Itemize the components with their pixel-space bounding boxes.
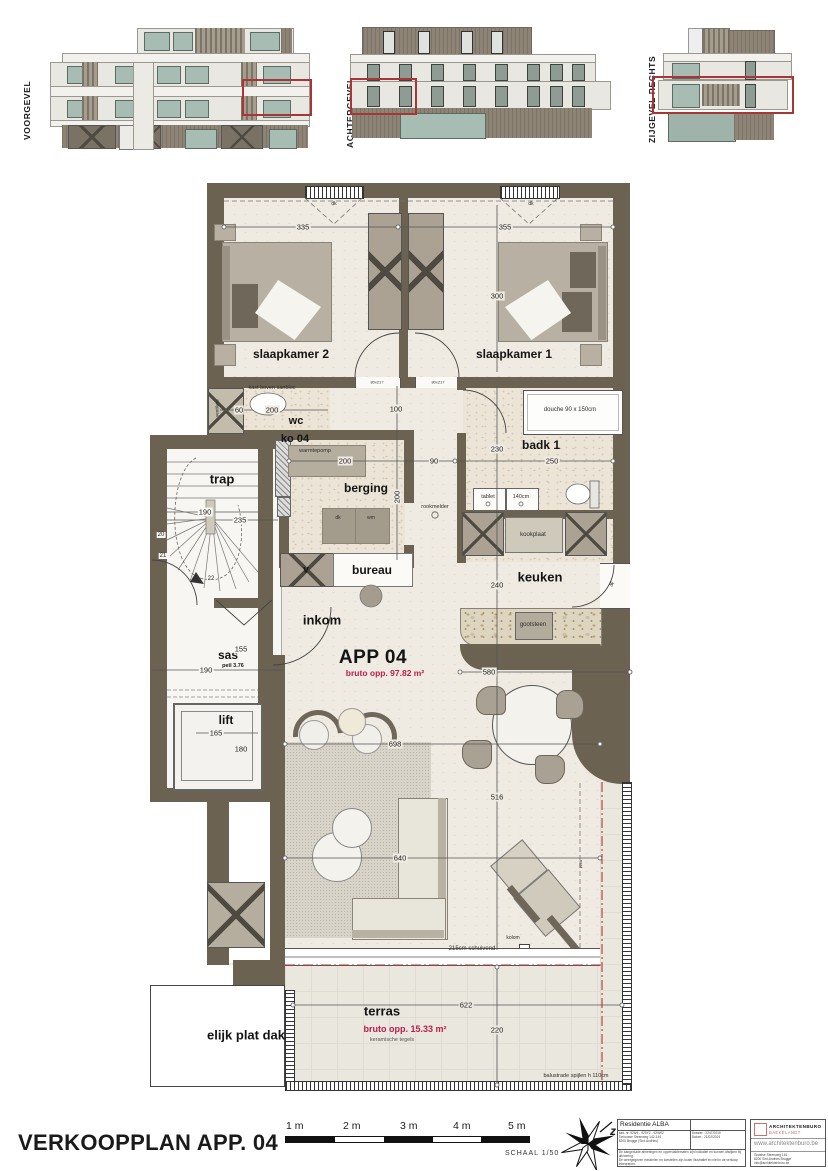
dim: 190 xyxy=(199,666,214,675)
room-label-berging: berging xyxy=(344,481,388,495)
level-label: peil 3.76 xyxy=(222,663,244,669)
dim: 580 xyxy=(482,668,497,677)
note-dp: dp xyxy=(610,581,615,586)
disclaimer-line: De aangeduide afmetingen en oppervlaktem… xyxy=(619,1150,742,1158)
note-schuivend: 215cm schuivend xyxy=(449,946,496,952)
note-tablet: tablet xyxy=(481,494,494,500)
room-label-badk1: badk 1 xyxy=(522,438,560,452)
scale-label: 3 m xyxy=(400,1120,418,1132)
plan-linework xyxy=(0,0,828,1171)
room-label-slaapkamer1: slaapkamer 1 xyxy=(476,347,552,361)
dim: 355 xyxy=(498,223,513,232)
dim: 640 xyxy=(393,854,408,863)
terrace-area: bruto opp. 15.33 m² xyxy=(363,1024,446,1034)
city-line: 8200 Brugge (Sint-Andries) xyxy=(619,1139,689,1143)
scale-segment xyxy=(335,1137,384,1142)
note-warmtepomp: warmtepomp xyxy=(299,448,331,454)
scale-bar xyxy=(285,1136,530,1143)
note-gootsteen: gootsteen xyxy=(520,622,546,628)
divider xyxy=(751,1138,825,1139)
architect-address: info@architektenburo.be xyxy=(754,1161,826,1165)
scale-label: 5 m xyxy=(508,1120,526,1132)
verkoopplan-sheet: VOORGEVEL ACHTERGEVEL ZIJGEVEL RECHTS xyxy=(0,0,828,1171)
note-tablet-140: 140cm xyxy=(513,494,530,500)
architect-site: www.architektenburo.be xyxy=(754,1141,818,1147)
note-dk-window: dk xyxy=(331,201,336,207)
dim: 200 xyxy=(265,406,280,415)
dim: 220 xyxy=(490,1026,505,1035)
architect-block: ARCHITEKTENBURO BAEKELANDT www.architekt… xyxy=(750,1119,826,1167)
note-vast: vast xyxy=(579,860,584,868)
scale-segment xyxy=(433,1137,481,1142)
note-kolom: kolom xyxy=(506,935,519,941)
scale-label: 4 m xyxy=(453,1120,471,1132)
door-size: 80x217 xyxy=(431,380,444,385)
dim: 240 xyxy=(490,581,505,590)
dim: 190 xyxy=(198,508,213,517)
room-label-lift: lift xyxy=(219,713,234,727)
label-v: v xyxy=(303,565,309,576)
titleblock-disclaimer-cell: De aangeduide afmetingen en oppervlaktem… xyxy=(617,1149,746,1167)
disclaimer-line: De weergegeven meubelen en toestellen zi… xyxy=(619,1158,742,1166)
room-label-wc: wc xyxy=(289,415,304,427)
dim: 200 xyxy=(338,457,353,466)
note-kast: kast boven sanbloc xyxy=(248,385,295,391)
sheet-title: VERKOOPPLAN APP. 04 xyxy=(18,1130,278,1156)
scale-segment xyxy=(481,1137,529,1142)
dim: 22 xyxy=(207,576,216,582)
titleblock-address-cell: kad. nr. 928/4 - 929Y2 - 929W2 Torhoutse… xyxy=(617,1130,691,1150)
dim: 20 xyxy=(157,532,166,538)
dim: 235 xyxy=(233,516,248,525)
dim: 335 xyxy=(296,223,311,232)
titleblock-dossier-cell: Dossier : 2247/2019 Datum : 21/02/2024 xyxy=(690,1130,746,1150)
scale-segment xyxy=(384,1137,433,1142)
dim: 155 xyxy=(234,645,249,654)
architect-logo-icon xyxy=(754,1123,767,1136)
door-size: 80x217 xyxy=(370,380,383,385)
project-name: Residentie ALBA xyxy=(618,1121,690,1128)
dim: 698 xyxy=(388,740,403,749)
scale-label: 2 m xyxy=(343,1120,361,1132)
room-label-ko04: ko 04 xyxy=(281,433,309,445)
north-letter: z xyxy=(610,1124,616,1138)
dim: 622 xyxy=(459,1001,474,1010)
apartment-label: APP 04 xyxy=(339,647,407,669)
architect-subname: BAEKELANDT xyxy=(769,1130,801,1135)
room-label-trap: trap xyxy=(210,472,235,487)
dim: 90 xyxy=(429,457,439,466)
dim: 230 xyxy=(490,445,505,454)
room-label-inkom: inkom xyxy=(303,613,341,628)
note-dk-window: dk xyxy=(528,201,533,207)
scale-label: 1 m xyxy=(286,1120,304,1132)
room-label-keuken: keuken xyxy=(518,570,563,585)
apartment-area: bruto opp. 97.82 m² xyxy=(346,668,424,678)
note-kookplaat: kookplaat xyxy=(520,532,546,538)
terrace-note: keramische tegels xyxy=(370,1037,414,1043)
note-ventilatie: ventilatie xyxy=(215,399,220,417)
room-label-terras: terras xyxy=(364,1004,400,1019)
dim: 516 xyxy=(490,793,505,802)
divider xyxy=(751,1151,825,1152)
dim: 180 xyxy=(234,745,249,754)
architect-name: ARCHITEKTENBURO xyxy=(769,1124,821,1129)
dim: 250 xyxy=(545,457,560,466)
dim: 60 xyxy=(234,406,244,415)
title-block: Residentie ALBA kad. nr. 928/4 - 929Y2 -… xyxy=(617,1119,746,1167)
datum: Datum : 21/02/2024 xyxy=(692,1135,744,1139)
note-douche: douche 90 x 150cm xyxy=(544,407,596,413)
scale-caption: SCHAAL 1/50 xyxy=(505,1150,559,1157)
dim: 165 xyxy=(209,729,224,738)
room-label-bureau: bureau xyxy=(352,563,392,577)
room-label-slaapkamer2: slaapkamer 2 xyxy=(253,347,329,361)
dim: 300 xyxy=(490,292,505,301)
note-rookmelder: rookmelder xyxy=(421,504,449,510)
note-balustrade: balustrade spijlen h 110cm xyxy=(543,1073,608,1079)
dim: 100 xyxy=(389,405,404,414)
scale-segment xyxy=(286,1137,335,1142)
appliance-wm: wm xyxy=(367,515,375,521)
flat-roof-label: elijk plat dak xyxy=(207,1028,285,1043)
dim: 200 xyxy=(393,490,402,505)
appliance-dk: dk xyxy=(335,515,340,521)
dim: 21 xyxy=(159,553,168,559)
